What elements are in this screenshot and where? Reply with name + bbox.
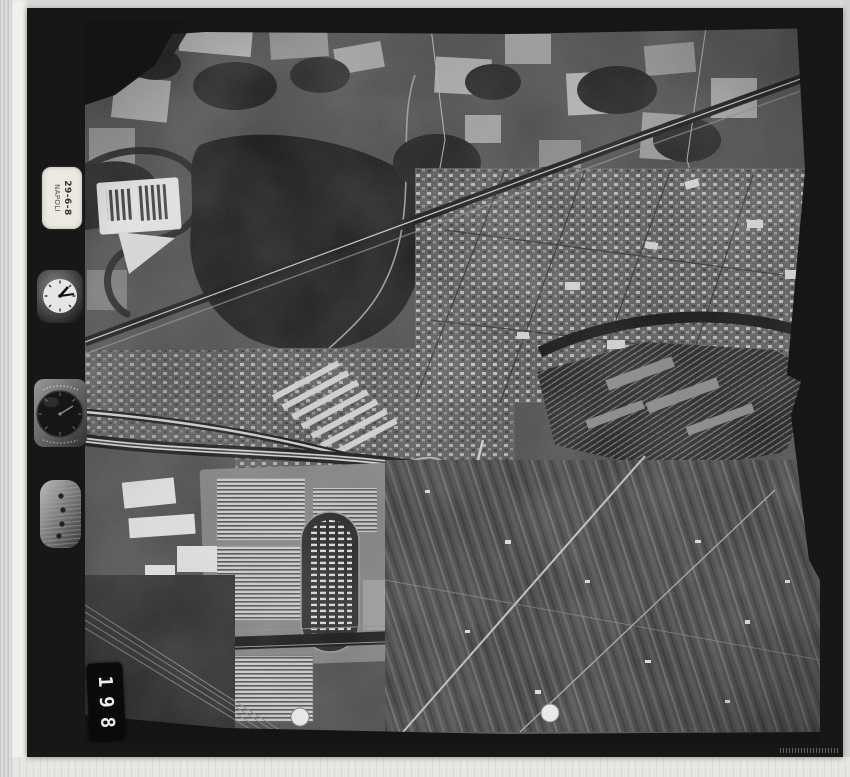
- scan-margin-right: [843, 0, 850, 777]
- film-edge-marks: [780, 748, 840, 753]
- scanner-edge-striations: [0, 0, 12, 777]
- clock-dial: [36, 268, 84, 325]
- aerial-photograph: 29-6-8 NAPOLI: [27, 8, 843, 757]
- aerial-imagery: [85, 20, 820, 743]
- altimeter-dial: [33, 378, 88, 448]
- date-label-place: NAPOLI: [52, 180, 62, 216]
- date-label-date: 29-6-8: [62, 180, 72, 216]
- frame-number: 198: [93, 666, 119, 737]
- scan-margin-left: [12, 0, 27, 777]
- frame-number-tab: 198: [86, 662, 126, 742]
- photo-vignette: [85, 20, 820, 743]
- level-indicator: [38, 478, 83, 550]
- scan-margin-bottom: [12, 757, 850, 777]
- date-label: 29-6-8 NAPOLI: [42, 167, 82, 229]
